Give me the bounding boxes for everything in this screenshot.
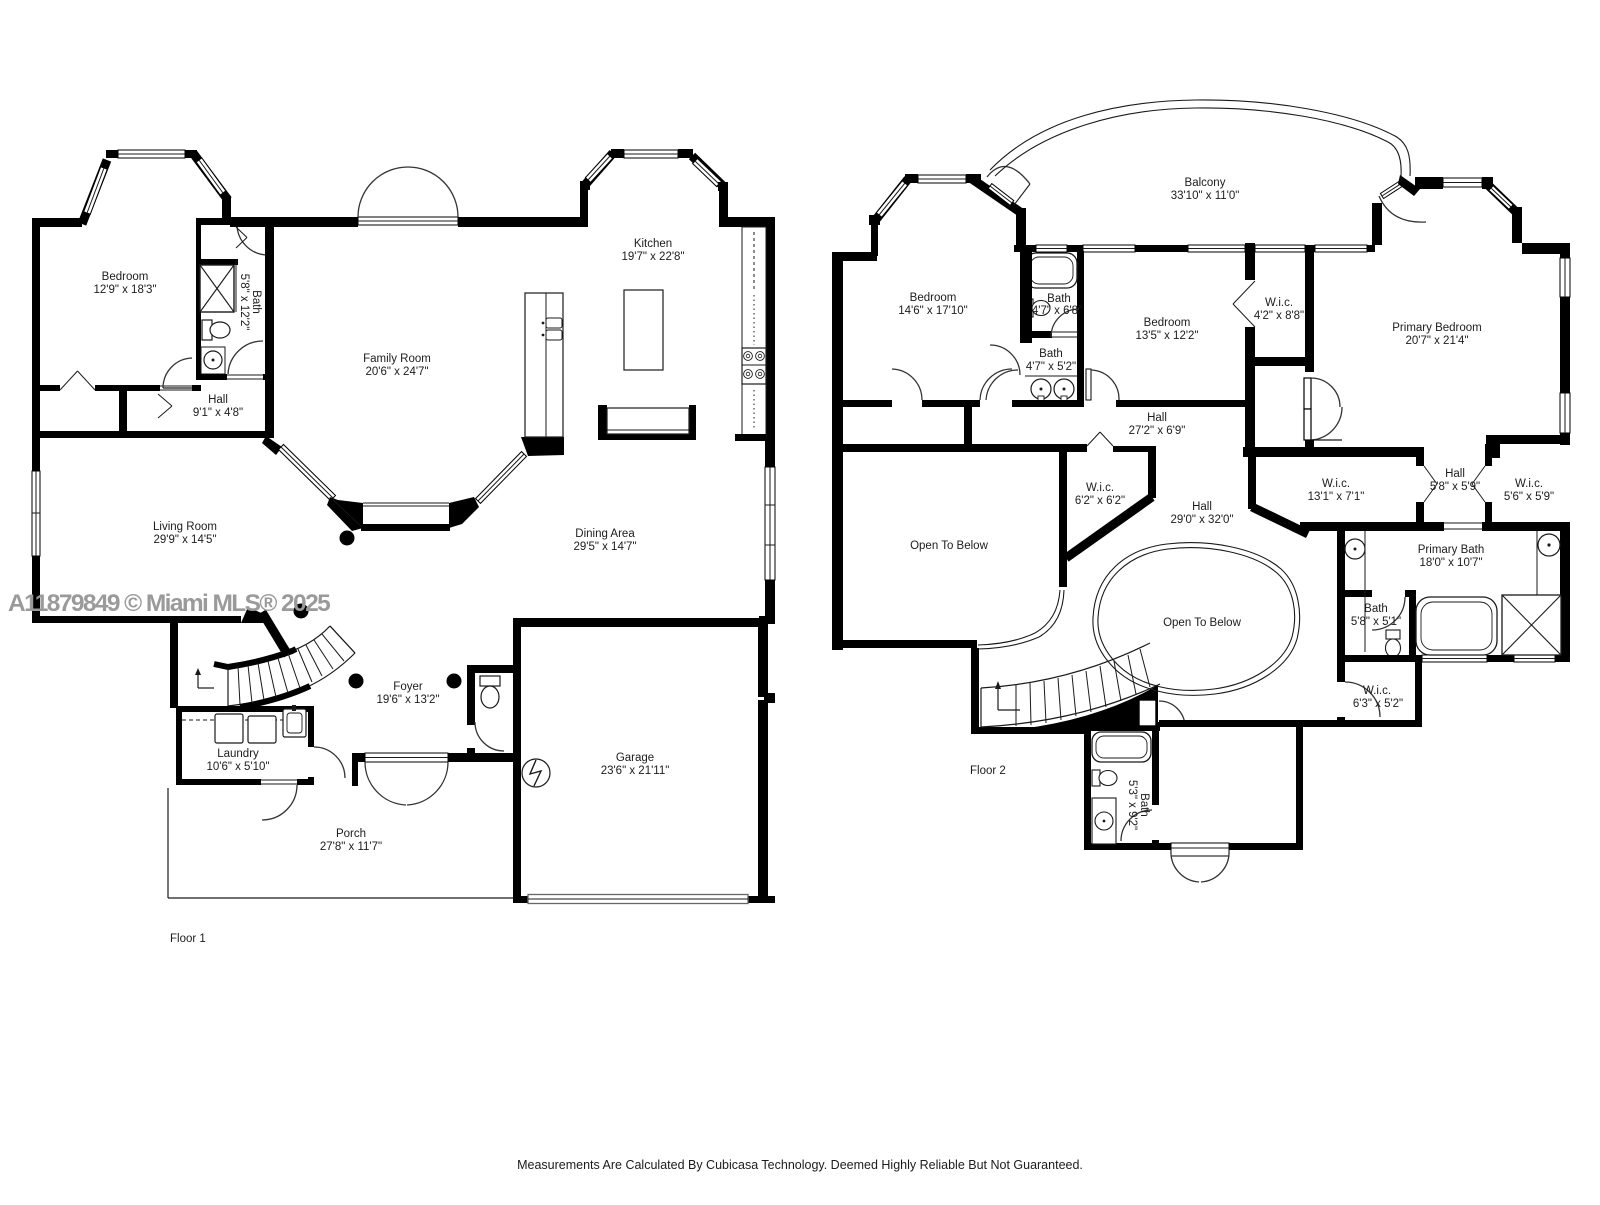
svg-text:Bedroom: Bedroom xyxy=(102,271,149,283)
svg-text:Floor 2: Floor 2 xyxy=(970,765,1006,777)
svg-text:29'0" x 32'0": 29'0" x 32'0" xyxy=(1170,514,1233,526)
svg-text:4'2" x 8'8": 4'2" x 8'8" xyxy=(1254,310,1304,322)
svg-text:14'6" x 17'10": 14'6" x 17'10" xyxy=(898,305,967,317)
svg-text:Porch: Porch xyxy=(336,828,366,840)
svg-text:9'1" x 4'8": 9'1" x 4'8" xyxy=(193,407,243,419)
svg-text:5'8" x 5'1": 5'8" x 5'1" xyxy=(1351,616,1401,628)
svg-text:19'6" x 13'2": 19'6" x 13'2" xyxy=(376,694,439,706)
svg-text:13'1" x 7'1": 13'1" x 7'1" xyxy=(1308,491,1365,503)
svg-text:W.i.c.: W.i.c. xyxy=(1515,478,1543,490)
svg-text:Bedroom: Bedroom xyxy=(910,292,957,304)
svg-text:Bath: Bath xyxy=(1039,348,1063,360)
svg-text:6'3" x 5'2": 6'3" x 5'2" xyxy=(1353,698,1403,710)
svg-text:33'10" x 11'0": 33'10" x 11'0" xyxy=(1171,190,1240,202)
svg-text:5'3" x 9'2": 5'3" x 9'2" xyxy=(1126,780,1138,830)
svg-text:Hall: Hall xyxy=(208,394,228,406)
svg-text:13'5" x 12'2": 13'5" x 12'2" xyxy=(1135,330,1198,342)
svg-text:Primary Bedroom: Primary Bedroom xyxy=(1392,322,1481,334)
svg-text:Floor 1: Floor 1 xyxy=(170,933,206,945)
svg-text:5'6" x 5'9": 5'6" x 5'9" xyxy=(1504,491,1554,503)
svg-text:W.i.c.: W.i.c. xyxy=(1265,297,1293,309)
svg-text:Hall: Hall xyxy=(1147,412,1167,424)
svg-text:W.i.c.: W.i.c. xyxy=(1322,478,1350,490)
svg-text:Bath: Bath xyxy=(1138,793,1150,817)
svg-text:27'2" x 6'9": 27'2" x 6'9" xyxy=(1129,425,1186,437)
svg-text:Dining Area: Dining Area xyxy=(575,528,635,540)
svg-text:Living Room: Living Room xyxy=(153,521,217,533)
svg-text:Bath: Bath xyxy=(1047,293,1071,305)
svg-text:29'5" x 14'7": 29'5" x 14'7" xyxy=(573,541,636,553)
svg-text:Laundry: Laundry xyxy=(217,748,259,760)
svg-text:19'7" x 22'8": 19'7" x 22'8" xyxy=(621,251,684,263)
svg-text:4'7" x 5'2": 4'7" x 5'2" xyxy=(1026,361,1076,373)
svg-text:4'7" x 6'8": 4'7" x 6'8" xyxy=(1032,305,1082,317)
svg-text:20'7" x 21'4": 20'7" x 21'4" xyxy=(1405,335,1468,347)
svg-text:Bedroom: Bedroom xyxy=(1144,317,1191,329)
svg-text:23'6" x 21'11": 23'6" x 21'11" xyxy=(601,765,670,777)
svg-text:Measurements Are Calculated By: Measurements Are Calculated By Cubicasa … xyxy=(517,1158,1083,1172)
svg-text:Hall: Hall xyxy=(1192,501,1212,513)
svg-text:5'8" x 12'2": 5'8" x 12'2" xyxy=(238,274,250,331)
svg-text:5'8" x 5'9": 5'8" x 5'9" xyxy=(1430,481,1480,493)
svg-text:Primary Bath: Primary Bath xyxy=(1418,544,1484,556)
svg-text:Family Room: Family Room xyxy=(363,353,431,365)
svg-text:Garage: Garage xyxy=(616,752,654,764)
svg-text:20'6" x 24'7": 20'6" x 24'7" xyxy=(365,366,428,378)
svg-text:Hall: Hall xyxy=(1445,468,1465,480)
svg-text:29'9" x 14'5": 29'9" x 14'5" xyxy=(153,534,216,546)
svg-text:Open To Below: Open To Below xyxy=(1163,617,1241,629)
svg-text:Balcony: Balcony xyxy=(1185,177,1226,189)
svg-text:6'2" x 6'2": 6'2" x 6'2" xyxy=(1075,495,1125,507)
svg-text:Bath: Bath xyxy=(1364,603,1388,615)
svg-text:10'6" x 5'10": 10'6" x 5'10" xyxy=(206,761,269,773)
svg-text:Open To Below: Open To Below xyxy=(910,540,988,552)
svg-text:18'0" x 10'7": 18'0" x 10'7" xyxy=(1419,557,1482,569)
svg-text:W.i.c.: W.i.c. xyxy=(1086,482,1114,494)
svg-text:Bath: Bath xyxy=(250,290,262,314)
svg-text:Foyer: Foyer xyxy=(393,681,423,693)
svg-text:Kitchen: Kitchen xyxy=(634,238,672,250)
svg-text:12'9" x 18'3": 12'9" x 18'3" xyxy=(93,284,156,296)
svg-text:A11879849 © Miami MLS® 2025: A11879849 © Miami MLS® 2025 xyxy=(8,590,330,617)
svg-text:W.i.c.: W.i.c. xyxy=(1363,685,1391,697)
svg-text:27'8" x 11'7": 27'8" x 11'7" xyxy=(320,841,382,853)
